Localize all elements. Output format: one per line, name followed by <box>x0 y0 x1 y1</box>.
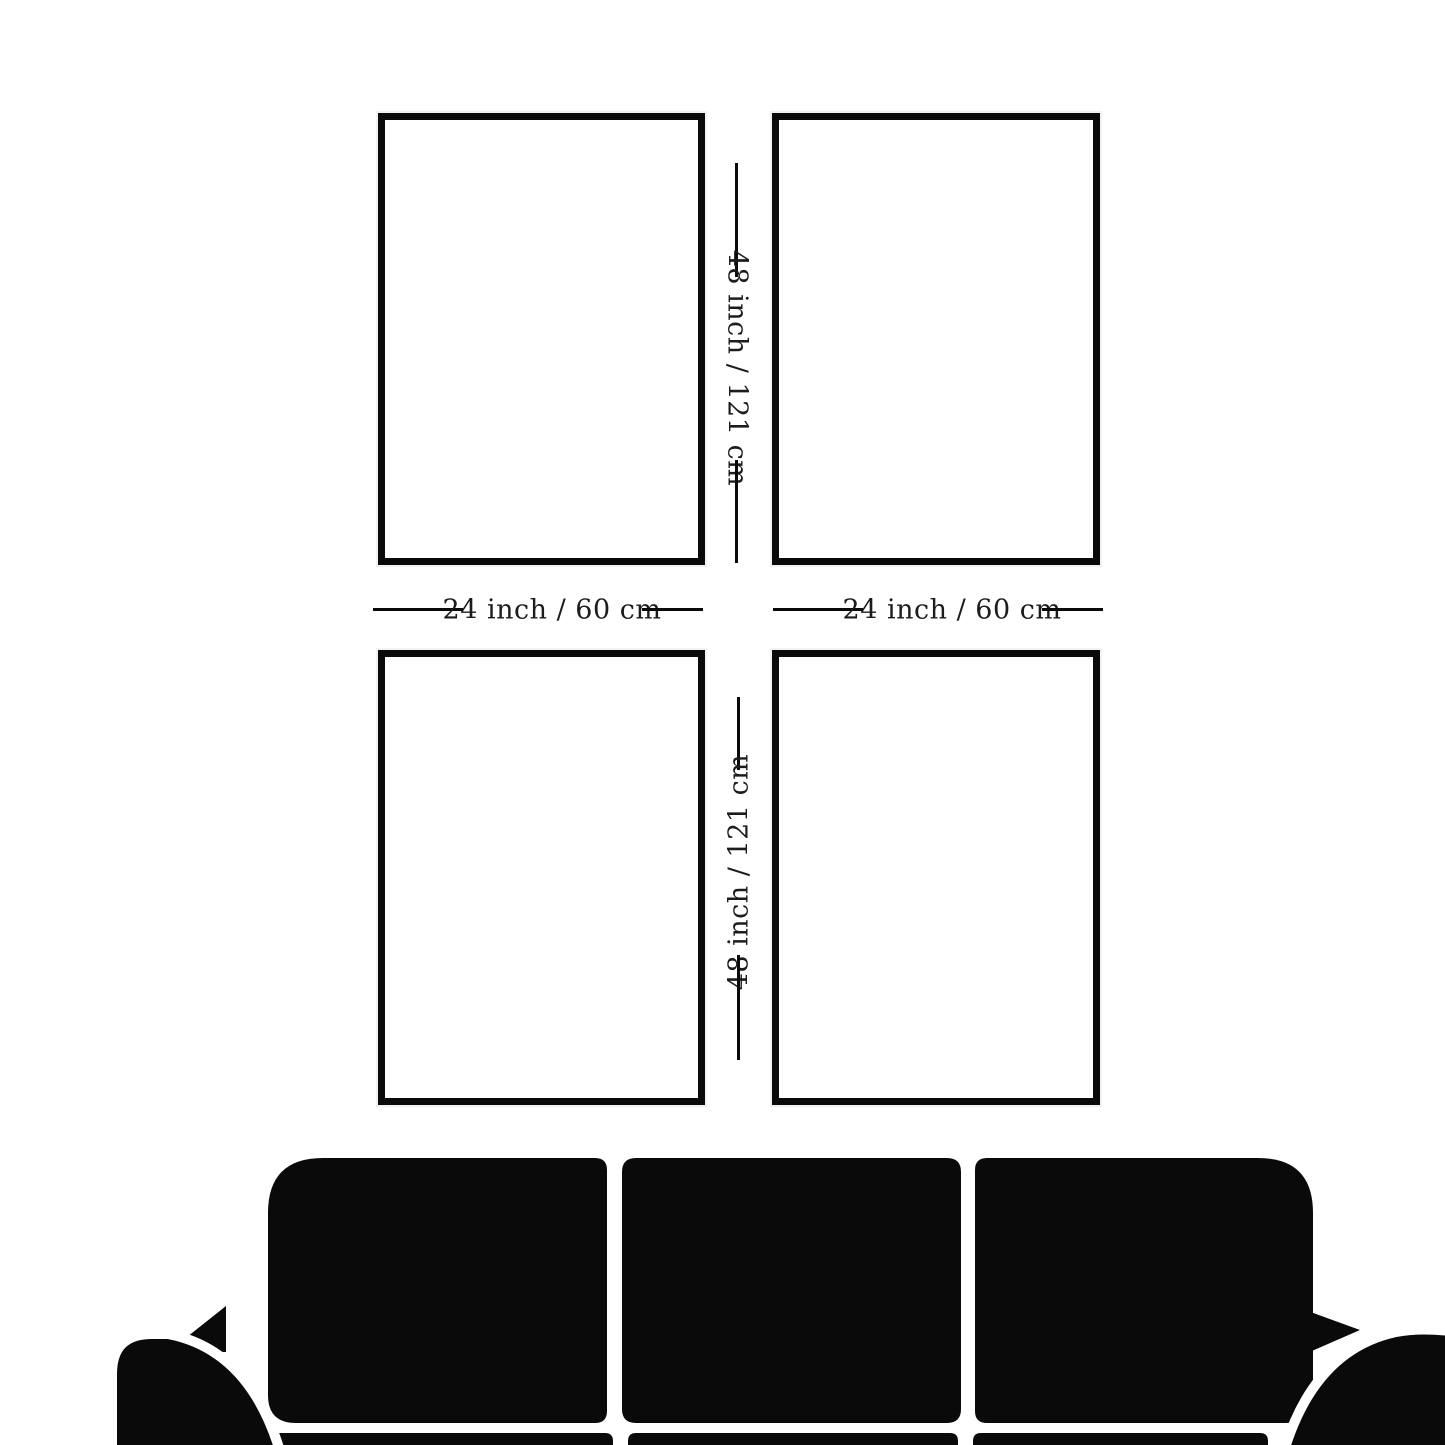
poster-frame-top-right <box>772 113 1100 565</box>
poster-frame-bottom-left <box>378 650 705 1105</box>
sofa-silhouette <box>0 1120 1445 1445</box>
width-dimension-label-right: 24 inch / 60 cm <box>843 595 1062 626</box>
sofa-back-cushion-right <box>975 1158 1313 1423</box>
sofa-seat-cushion-middle <box>628 1433 958 1445</box>
sofa-armrest-left <box>112 1334 282 1445</box>
sofa-back-cushion-left <box>268 1158 607 1423</box>
poster-frame-bottom-right <box>772 650 1100 1105</box>
dimension-tick <box>642 608 703 611</box>
width-dimension-label-left: 24 inch / 60 cm <box>443 595 662 626</box>
dimension-tick <box>737 955 740 1060</box>
sofa-seat-cushion-left <box>272 1433 613 1445</box>
height-dimension-label-top: 48 inch / 121 cm <box>722 250 753 487</box>
poster-frame-top-left <box>378 113 705 565</box>
dimension-tick <box>735 460 738 563</box>
dimension-tick <box>1042 608 1103 611</box>
sofa-seat-cushion-right <box>973 1433 1268 1445</box>
sofa-back-cushion-middle <box>622 1158 961 1423</box>
size-guide-canvas: 48 inch / 121 cm 48 inch / 121 cm 24 inc… <box>0 0 1445 1445</box>
